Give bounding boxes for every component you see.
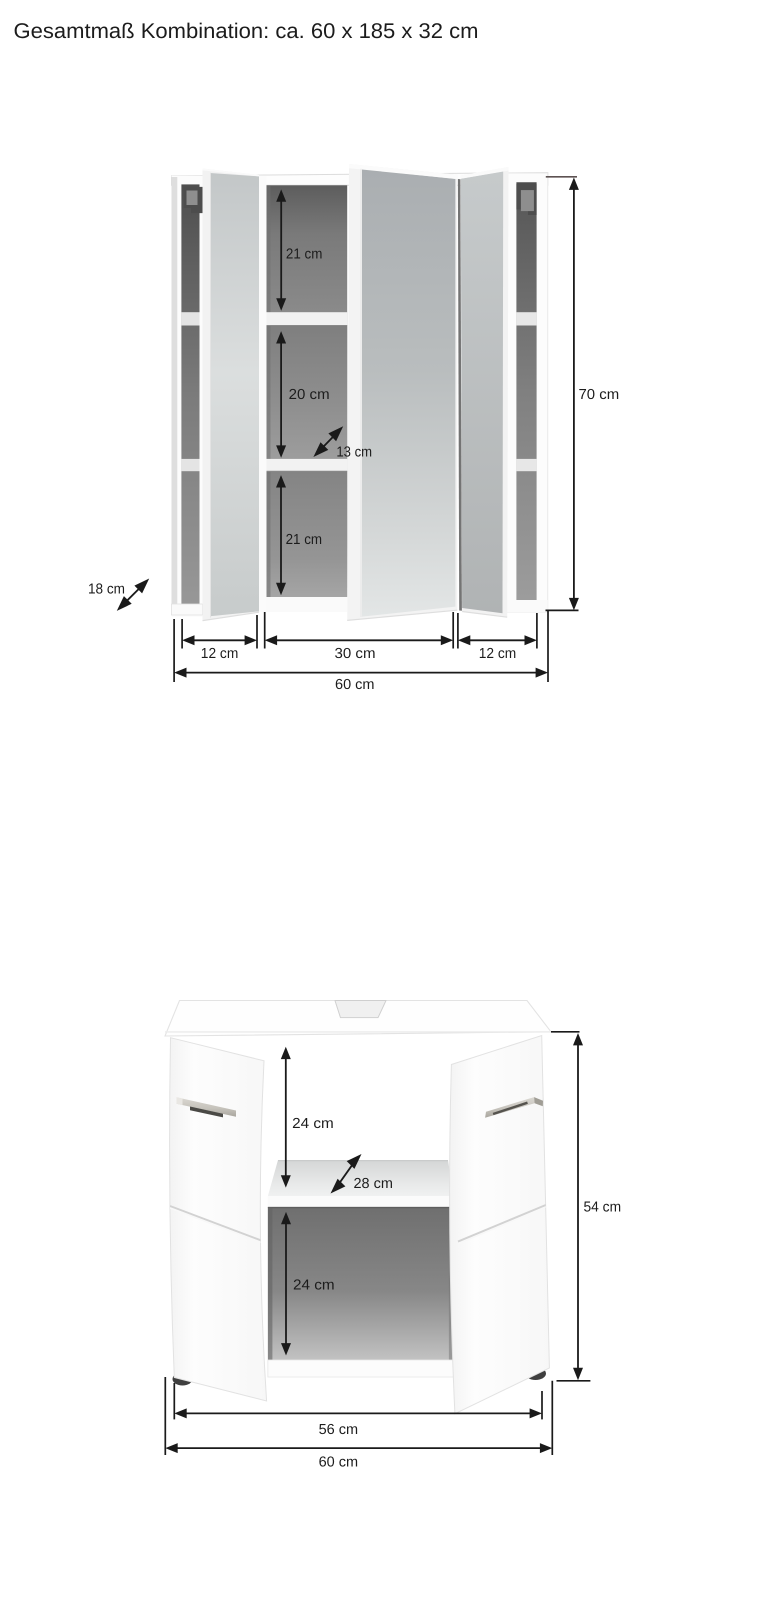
svg-text:60 cm: 60 cm bbox=[319, 1455, 359, 1471]
svg-text:21 cm: 21 cm bbox=[286, 247, 323, 263]
svg-text:24 cm: 24 cm bbox=[293, 1278, 335, 1294]
svg-text:30 cm: 30 cm bbox=[335, 646, 376, 662]
svg-text:12 cm: 12 cm bbox=[479, 646, 517, 662]
svg-text:70 cm: 70 cm bbox=[579, 387, 620, 403]
svg-text:28 cm: 28 cm bbox=[354, 1176, 393, 1192]
svg-text:Gesamtmaß Kombination: ca. 60: Gesamtmaß Kombination: ca. 60 x 185 x 32… bbox=[14, 19, 479, 43]
svg-text:56 cm: 56 cm bbox=[319, 1422, 359, 1438]
svg-text:18 cm: 18 cm bbox=[88, 581, 125, 597]
svg-text:12 cm: 12 cm bbox=[201, 646, 239, 662]
svg-text:24 cm: 24 cm bbox=[292, 1116, 334, 1132]
svg-text:20 cm: 20 cm bbox=[289, 387, 330, 403]
svg-text:54 cm: 54 cm bbox=[584, 1199, 622, 1215]
svg-text:60 cm: 60 cm bbox=[335, 677, 375, 693]
svg-text:13 cm: 13 cm bbox=[336, 444, 372, 460]
svg-text:21 cm: 21 cm bbox=[286, 532, 323, 548]
